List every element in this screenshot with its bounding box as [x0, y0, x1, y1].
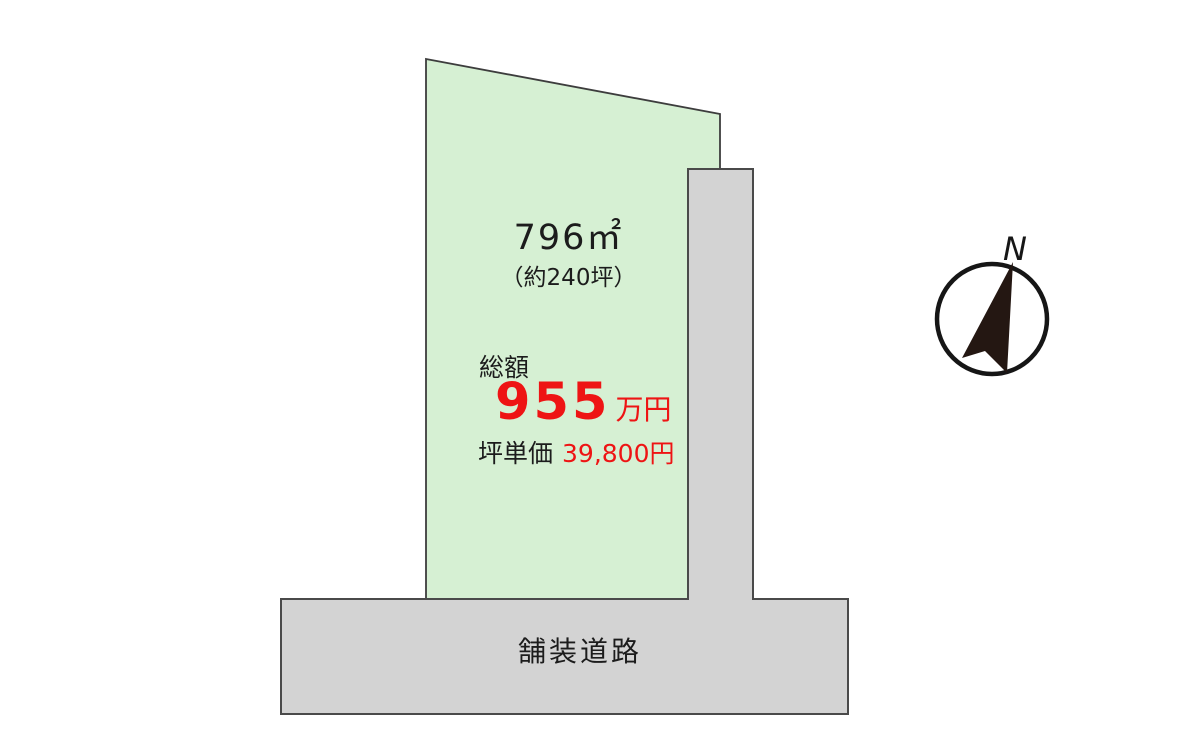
total-price-unit: 万円: [615, 396, 671, 424]
total-price-line: 955 万円: [495, 377, 671, 428]
area-tsubo-label: （約240坪）: [426, 264, 711, 293]
tsubo-unit-price-line: 坪単価39,800円: [478, 438, 675, 469]
compass-north-label: N: [1003, 230, 1027, 268]
tsubo-price-value: 39,800円: [562, 439, 674, 468]
site-plan-canvas: N 796㎡ （約240坪） 総額 955 万円 坪単価39,800円 舗装道路: [0, 0, 1200, 750]
area-size-label: 796㎡: [426, 217, 711, 261]
tsubo-price-caption: 坪単価: [478, 439, 553, 468]
total-price-amount: 955: [495, 377, 610, 428]
road-name-label: 舗装道路: [430, 634, 730, 669]
land-parcel-shape: [426, 59, 720, 599]
